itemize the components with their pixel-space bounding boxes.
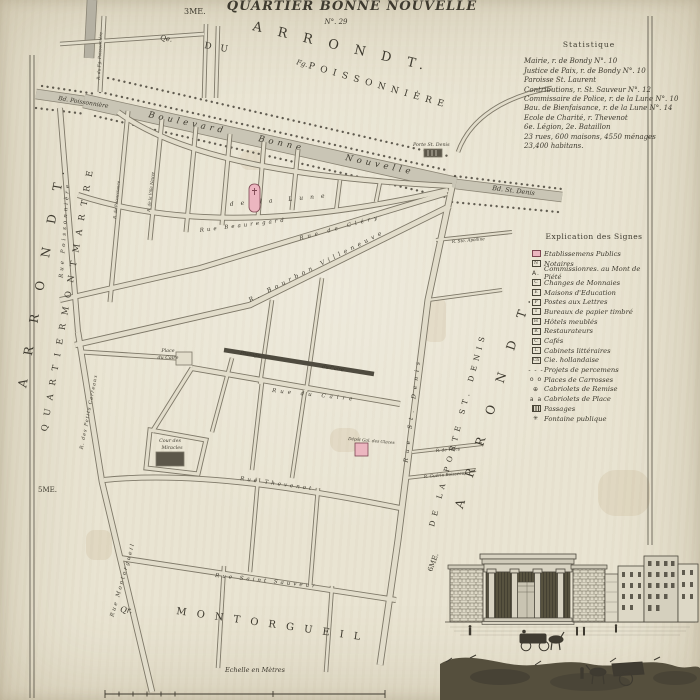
- legend-item: TBureaux de papier timbré: [528, 307, 660, 317]
- legend-symbol-box-icon: E: [528, 289, 544, 296]
- street-buildings-right: [618, 556, 698, 622]
- map-label: Fg.: [294, 58, 308, 69]
- map-label: M O N T O R G U E I L: [176, 606, 365, 643]
- legend-label: Postes aux Lettres: [544, 298, 607, 306]
- map-label: Echelle en Mètres: [224, 666, 286, 674]
- legend-label: Changes de Monnaies: [544, 279, 620, 287]
- legend-symbol-box-icon: C: [528, 279, 544, 286]
- legend-item: LCabinets littéraires: [528, 346, 660, 356]
- legend-symbol-plain-icon: a a: [528, 396, 544, 403]
- legend-symbol-box-icon: P: [528, 299, 544, 306]
- statistics-block: Statistique Mairie, r. de Bondy N°. 10Ju…: [524, 40, 654, 151]
- street-fill: [252, 382, 262, 470]
- legend-label: Cie. hollandaise: [544, 356, 599, 364]
- legend-symbol-box-icon: C: [528, 338, 544, 345]
- public-building: [355, 443, 368, 456]
- legend-symbol-box-icon: H: [528, 318, 544, 325]
- legend-label: Restaurateurs: [544, 327, 593, 335]
- legend-item: CCafés: [528, 336, 660, 346]
- building-block: [424, 149, 442, 157]
- street-fill: [292, 390, 305, 478]
- street-fill: [260, 300, 272, 384]
- street-fill: [428, 290, 502, 300]
- legend-label: Passages: [544, 405, 575, 413]
- legend-symbol-box-icon: L: [528, 347, 544, 354]
- building-block: [156, 452, 184, 466]
- map-label: Rue Saint Sauveur: [214, 573, 318, 590]
- flanking-wall-right: [571, 565, 618, 622]
- map-label: 6ME.: [426, 552, 440, 573]
- street-fill: [310, 488, 318, 588]
- legend-symbol-box-icon: Ch: [528, 357, 544, 364]
- flanking-wall-left: [448, 565, 485, 622]
- map-label: du Caire: [158, 355, 179, 361]
- map-label: Place: [160, 348, 174, 354]
- legend-title: Explication des Signes: [528, 232, 660, 241]
- statistics-lines: Mairie, r. de Bondy N°. 10Justice de Pai…: [524, 57, 654, 151]
- tree-row-dots: [452, 202, 558, 212]
- boulevard-band: [89, 0, 92, 58]
- statistics-line: Ecole de Charité, r. Thevenot: [524, 114, 654, 123]
- statistics-line: Commissaire de Police, r. de la Lune N°.…: [524, 95, 654, 104]
- legend-symbol-plain-icon: ✳: [528, 415, 544, 422]
- legend-label: Projets de percemens: [544, 366, 619, 374]
- map-label: Porte St. Denis: [412, 142, 450, 148]
- legend-item: Etablissemens Publics: [528, 249, 660, 259]
- street-fill: [250, 478, 258, 572]
- legend-symbol-pink-icon: [528, 250, 544, 257]
- statistics-line: Paroisse St. Laurent: [524, 76, 654, 85]
- engraving-vignette: [440, 552, 700, 700]
- legend-label: Bureaux de papier timbré: [544, 308, 633, 316]
- statistics-line: 6e. Légion, 2e. Bataillon: [524, 123, 654, 132]
- legend-item: RRestaurateurs: [528, 327, 660, 337]
- legend-label: Places de Carrosses: [544, 376, 613, 384]
- map-label: 3ME.: [184, 7, 206, 16]
- legend-label: Maisons d'Education: [544, 289, 616, 297]
- statistics-line: Mairie, r. de Bondy N°. 10: [524, 57, 654, 66]
- map-label: R. Bourbon Villeneuve: [247, 229, 387, 305]
- legend-symbol-plain-icon: o o: [528, 376, 544, 383]
- map-label: Qe.: [160, 34, 173, 44]
- street-fill: [152, 368, 192, 432]
- legend-label: Cabriolets de Place: [544, 395, 611, 403]
- map-label: de la Lune: [230, 192, 332, 208]
- map-label: D U: [203, 41, 231, 55]
- legend-item: Passages: [528, 404, 660, 414]
- legend-symbol-dash-icon: - - -: [528, 367, 544, 374]
- legend-block: Explication des Signes Etablissemens Pub…: [528, 232, 660, 423]
- legend-label: Fontaine publique: [544, 415, 607, 423]
- legend-item: ✳Fontaine publique: [528, 414, 660, 424]
- legend-item: o oPlaces de Carrosses: [528, 375, 660, 385]
- map-label: 5ME.: [38, 486, 57, 494]
- legend-symbol-hatch-icon: [528, 405, 544, 412]
- legend-item: a aCabriolets de Place: [528, 394, 660, 404]
- statistics-line: 23 rues, 600 maisons, 4550 ménages: [524, 133, 654, 142]
- legend-rows: Etablissemens PublicsNNotairesA.Commissi…: [528, 249, 660, 423]
- legend-symbol-plain-icon: ⊕: [528, 386, 544, 393]
- legend-symbol-box-icon: R: [528, 328, 544, 335]
- legend-item: A.Commissionres. au Mont de Piété: [528, 268, 660, 278]
- legend-label: Hôtels meublés: [544, 318, 597, 326]
- legend-label: Etablissemens Publics: [544, 250, 621, 258]
- legend-symbol-box-icon: T: [528, 308, 544, 315]
- map-label: QUARTIER BONNE NOUVELLE: [227, 0, 477, 14]
- map-label: du Caire: [322, 364, 344, 373]
- legend-item: ChCie. hollandaise: [528, 356, 660, 366]
- map-label: Cour des: [159, 438, 181, 444]
- street-fill: [75, 206, 450, 345]
- portico-building: [480, 554, 576, 625]
- map-label: Qr.: [120, 605, 133, 615]
- street-fill: [306, 278, 322, 392]
- statistics-line: Bau. de Bienfaisance, r. de la Lune N°. …: [524, 104, 654, 113]
- legend-item: PPostes aux Lettres: [528, 297, 660, 307]
- legend-label: Cafés: [544, 337, 563, 345]
- statistics-title: Statistique: [524, 40, 654, 49]
- map-label: N°. 29: [324, 18, 349, 26]
- legend-label: Cabinets littéraires: [544, 347, 611, 355]
- map-label: A R R O N D T.: [250, 19, 431, 75]
- paper-stain: [598, 470, 650, 516]
- legend-item: - - -Projets de percemens: [528, 365, 660, 375]
- statistics-line: Justice de Paix, r. de Bondy N°. 10: [524, 67, 654, 76]
- horse-carriage: [520, 630, 564, 651]
- statistics-line: Contributions, r. St. Sauveur N°. 12: [524, 86, 654, 95]
- foreground-mound: [440, 655, 700, 700]
- legend-symbol-box-icon: N: [528, 260, 544, 267]
- map-label: Miracles: [160, 445, 183, 451]
- statistics-line: 23,400 habitans.: [524, 142, 654, 151]
- legend-label: Cabriolets de Remise: [544, 385, 618, 393]
- street-casing: [75, 206, 450, 345]
- legend-item: ⊕Cabriolets de Remise: [528, 385, 660, 395]
- legend-item: HHôtels meublés: [528, 317, 660, 327]
- paper-stain: [86, 530, 112, 560]
- street-fill: [222, 134, 230, 225]
- legend-item: EMaisons d'Education: [528, 288, 660, 298]
- map-label: Passage: [239, 350, 261, 359]
- legend-symbol-plain-icon: A.: [528, 270, 544, 277]
- street-fill: [60, 34, 204, 44]
